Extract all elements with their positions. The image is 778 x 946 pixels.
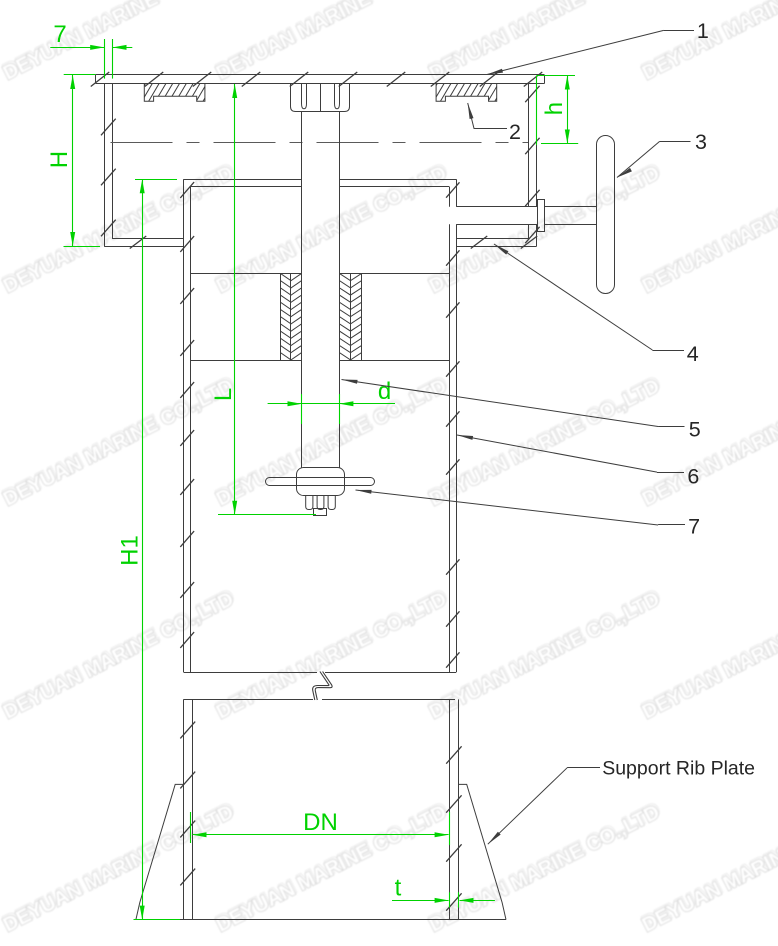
- svg-text:3: 3: [695, 130, 707, 154]
- svg-text:7: 7: [688, 515, 700, 539]
- svg-text:H: H: [46, 151, 73, 168]
- svg-text:H1: H1: [117, 535, 144, 566]
- svg-text:1: 1: [697, 19, 709, 43]
- svg-text:h: h: [541, 102, 568, 115]
- svg-text:5: 5: [689, 417, 701, 441]
- svg-text:4: 4: [687, 342, 699, 366]
- svg-text:t: t: [395, 875, 402, 902]
- svg-text:DN: DN: [303, 809, 338, 836]
- svg-text:L: L: [210, 388, 237, 401]
- svg-text:Support Rib Plate: Support Rib Plate: [602, 758, 755, 780]
- svg-text:6: 6: [687, 464, 699, 488]
- svg-text:d: d: [378, 378, 391, 405]
- svg-text:7: 7: [53, 21, 66, 48]
- svg-text:2: 2: [509, 120, 521, 144]
